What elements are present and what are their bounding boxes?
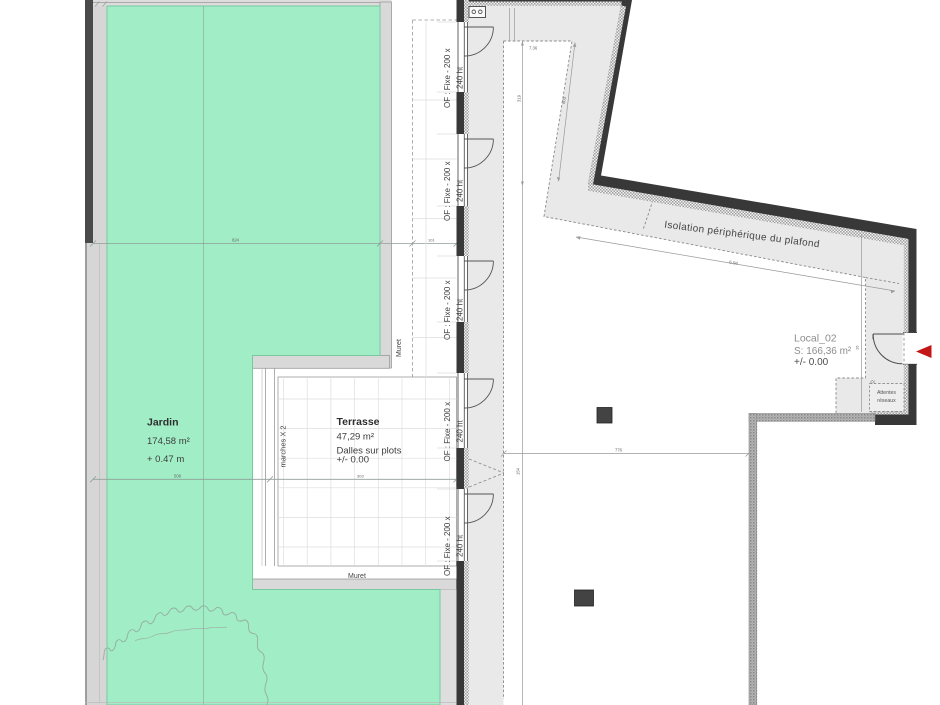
svg-text:Muret: Muret xyxy=(348,573,366,580)
svg-text:OF : Fixe - 200 x: OF : Fixe - 200 x xyxy=(443,48,452,108)
svg-text:+/- 0.00: +/- 0.00 xyxy=(794,357,829,368)
svg-text:+/- 0.00: +/- 0.00 xyxy=(337,455,369,466)
svg-text:240 ht: 240 ht xyxy=(456,534,465,557)
svg-text:7.36: 7.36 xyxy=(529,46,538,51)
svg-text:101: 101 xyxy=(428,238,435,243)
svg-text:303: 303 xyxy=(357,474,364,479)
svg-text:Jardin: Jardin xyxy=(147,417,179,429)
svg-text:Muret: Muret xyxy=(396,339,403,357)
svg-text:154: 154 xyxy=(516,467,521,475)
svg-text:240 ht: 240 ht xyxy=(456,419,465,442)
svg-text:S: 166,36 m²: S: 166,36 m² xyxy=(794,346,852,357)
svg-text:OF : Fixe - 200 x: OF : Fixe - 200 x xyxy=(443,516,452,576)
svg-text:174,58 m²: 174,58 m² xyxy=(147,436,190,447)
svg-text:824: 824 xyxy=(232,238,240,243)
svg-text:240 ht: 240 ht xyxy=(456,298,465,321)
svg-text:+ 0.47 m: + 0.47 m xyxy=(147,454,184,465)
svg-text:OF : Fixe - 200 x: OF : Fixe - 200 x xyxy=(443,280,452,340)
svg-text:marches X 2: marches X 2 xyxy=(279,425,288,467)
svg-text:Local_02: Local_02 xyxy=(794,333,837,345)
svg-text:47,29 m²: 47,29 m² xyxy=(337,432,375,443)
svg-text:16: 16 xyxy=(855,345,860,350)
svg-text:OF : Fixe - 200 x: OF : Fixe - 200 x xyxy=(443,402,452,462)
svg-text:603: 603 xyxy=(561,96,567,104)
svg-text:319: 319 xyxy=(517,94,522,102)
svg-text:OF : Fixe - 200 x: OF : Fixe - 200 x xyxy=(443,161,452,221)
svg-text:508: 508 xyxy=(174,474,182,479)
svg-text:240 ht: 240 ht xyxy=(456,179,465,202)
svg-text:Terrasse: Terrasse xyxy=(337,416,380,428)
svg-text:776: 776 xyxy=(615,448,623,453)
svg-text:réseaux: réseaux xyxy=(877,398,896,404)
svg-text:240 ht: 240 ht xyxy=(456,66,465,89)
svg-text:Attentes: Attentes xyxy=(877,390,896,396)
